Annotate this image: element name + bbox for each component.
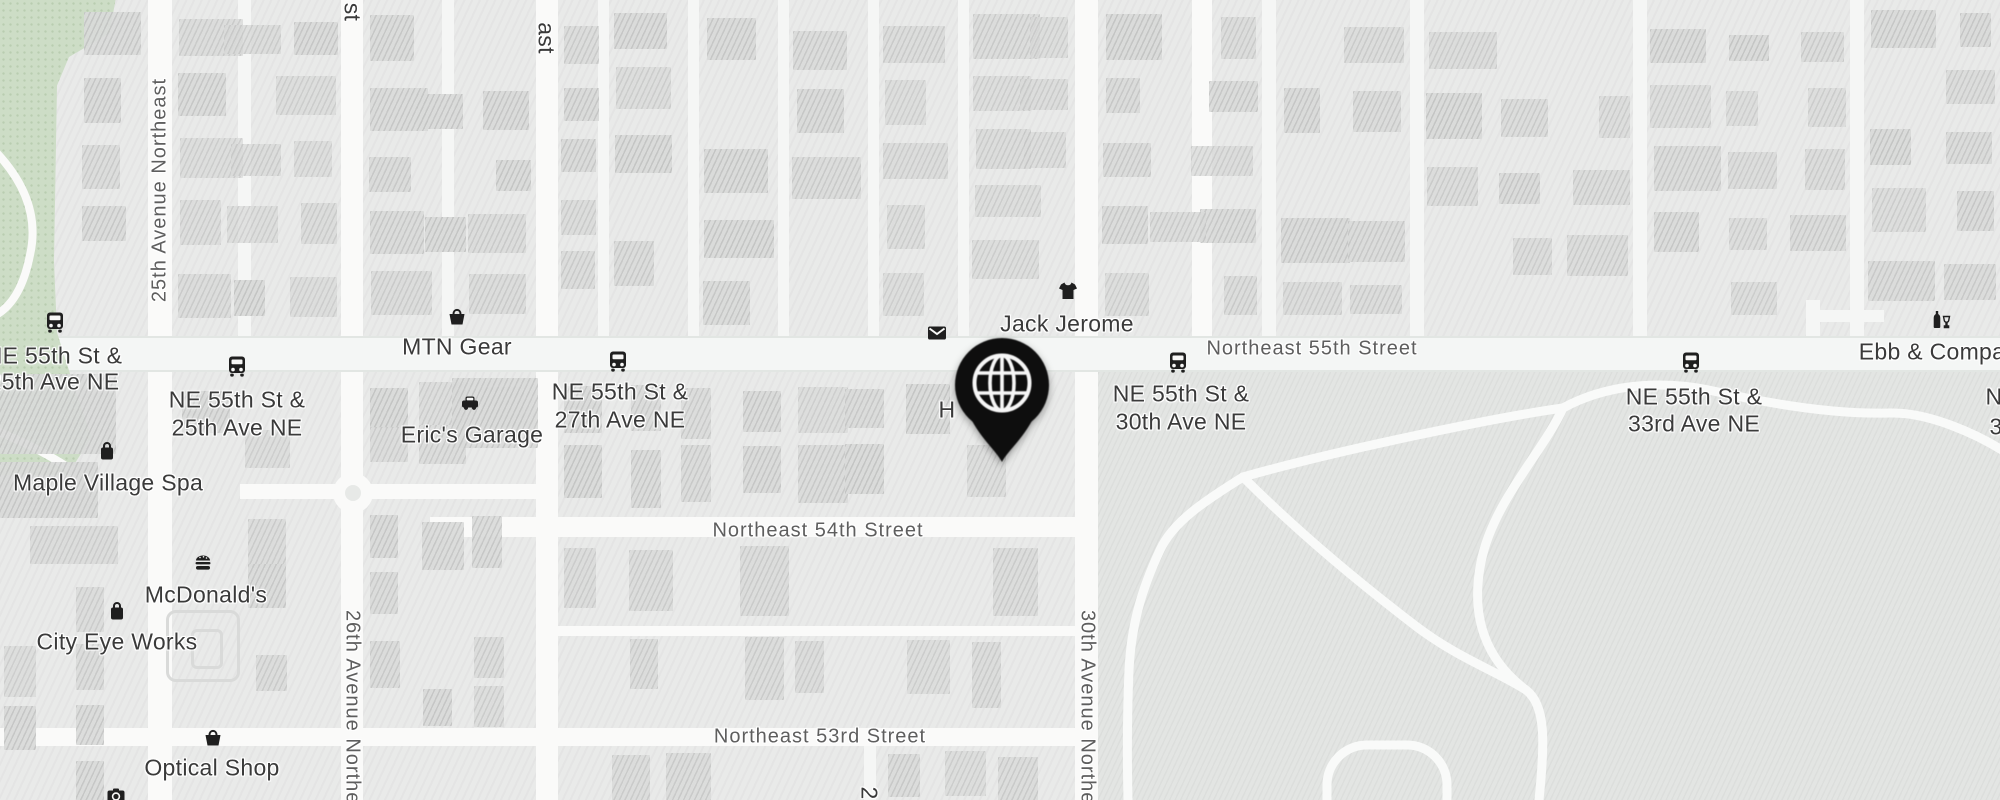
road-segment	[1806, 310, 1884, 322]
building	[1429, 32, 1497, 69]
building	[1200, 209, 1256, 243]
building	[1650, 85, 1711, 128]
street-label: 25th Avenue Northeast	[149, 78, 172, 302]
building	[370, 641, 400, 688]
building	[616, 67, 671, 109]
building	[666, 753, 711, 800]
building	[1957, 191, 1994, 231]
building	[1805, 149, 1845, 190]
building	[793, 31, 847, 70]
poi-label: 30th Ave NE	[1116, 409, 1247, 436]
building	[294, 22, 338, 55]
road-segment	[442, 0, 454, 336]
building	[1872, 188, 1926, 232]
building	[888, 754, 920, 797]
building	[1281, 218, 1350, 263]
building	[907, 640, 950, 694]
building	[1871, 10, 1936, 48]
poi-label: 27th Ave NE	[555, 407, 686, 434]
poi-label: Ebb & Compa	[1859, 339, 2000, 366]
poi-label: Maple Village Spa	[13, 470, 203, 497]
building	[1654, 146, 1721, 191]
building	[743, 446, 781, 493]
building	[1808, 88, 1846, 127]
building	[1726, 91, 1758, 126]
building	[629, 550, 673, 611]
poi-label: NE 55th St &	[1626, 384, 1763, 411]
building	[1344, 27, 1404, 63]
building	[76, 705, 104, 745]
building	[707, 18, 756, 60]
building	[76, 587, 104, 632]
building	[945, 751, 986, 796]
road-segment	[1410, 0, 1424, 336]
building	[1348, 221, 1405, 262]
building	[883, 26, 945, 63]
building	[1501, 99, 1548, 137]
building	[1729, 218, 1767, 250]
bus-icon	[1166, 350, 1190, 374]
poi-label: 25th Ave NE	[0, 369, 119, 396]
building	[227, 206, 278, 243]
building	[740, 546, 789, 616]
building	[703, 281, 750, 325]
building	[370, 572, 398, 614]
building	[84, 78, 121, 123]
building	[474, 637, 504, 678]
building	[614, 13, 667, 49]
street-label: Northeast 53rd Street	[714, 726, 926, 749]
street-label: Northeast 55th Street	[1206, 338, 1417, 361]
building	[798, 445, 848, 503]
building	[1868, 261, 1935, 301]
road-segment	[1262, 0, 1276, 336]
building	[1513, 238, 1552, 275]
bar-icon	[1929, 308, 1953, 332]
building	[425, 217, 466, 252]
building	[1790, 215, 1846, 251]
building	[1573, 170, 1630, 205]
building	[564, 548, 596, 608]
building	[234, 280, 265, 316]
building	[564, 26, 599, 64]
building	[224, 25, 281, 54]
building	[614, 241, 654, 286]
label-fragment: st	[339, 3, 366, 22]
building	[1284, 88, 1320, 133]
building	[369, 157, 411, 192]
road-segment	[1633, 0, 1647, 336]
poi-label: NE 55th St &	[1113, 381, 1250, 408]
shopping-bag-icon	[95, 439, 119, 463]
building	[1427, 167, 1478, 206]
building	[84, 12, 141, 55]
car-icon	[458, 391, 482, 415]
building	[4, 706, 36, 750]
building	[1944, 264, 1996, 300]
building	[1650, 29, 1706, 63]
building	[1801, 32, 1844, 62]
building	[417, 94, 463, 129]
building	[1209, 81, 1258, 112]
building	[561, 200, 596, 235]
building	[1191, 146, 1253, 176]
golf-course-paths	[1098, 372, 2000, 800]
bus-icon	[606, 349, 630, 373]
golf-course-area	[1098, 372, 2000, 800]
street-label: 30th Avenue Northeast	[1076, 610, 1099, 800]
building	[1106, 14, 1162, 60]
poi-label: 25th Ave NE	[172, 415, 303, 442]
road-segment	[598, 0, 609, 336]
building	[745, 637, 784, 700]
poi-label: MTN Gear	[402, 334, 512, 361]
map-canvas[interactable]: Northeast 55th StreetNortheast 54th Stre…	[0, 0, 2000, 800]
building	[370, 15, 414, 61]
shopping-basket-icon	[201, 725, 225, 749]
building	[564, 445, 602, 498]
building	[972, 240, 1039, 279]
street-label: Northeast 54th Street	[712, 520, 923, 543]
building	[180, 200, 221, 245]
building	[1221, 17, 1256, 59]
building	[998, 757, 1038, 800]
building	[256, 655, 287, 691]
building	[371, 271, 432, 315]
building	[704, 149, 768, 193]
road-segment	[556, 626, 1078, 636]
road-segment	[868, 0, 879, 336]
shopping-basket-icon	[445, 304, 469, 328]
bus-icon	[1679, 350, 1703, 374]
building	[1103, 143, 1151, 177]
building	[468, 214, 526, 253]
building	[82, 145, 120, 189]
building	[1960, 13, 1991, 47]
building	[423, 689, 452, 726]
road-segment	[240, 484, 540, 499]
building	[1946, 70, 1995, 104]
poi-label: City Eye Works	[37, 629, 198, 656]
label-fragment: ast	[533, 22, 560, 54]
building	[248, 519, 286, 568]
bus-icon	[43, 310, 67, 334]
poi-label: NE 55th St &	[0, 343, 122, 370]
building	[1283, 282, 1342, 315]
label-fragment: 2	[856, 786, 883, 799]
building	[797, 89, 844, 133]
poi-label: Jack Jerome	[1000, 311, 1134, 338]
building	[972, 642, 1001, 708]
building	[422, 522, 464, 570]
building	[483, 91, 529, 130]
building	[1024, 132, 1066, 168]
map-pin[interactable]	[952, 335, 1052, 465]
building	[975, 185, 1041, 217]
building	[474, 686, 504, 727]
building	[1353, 91, 1401, 132]
building	[1728, 152, 1777, 189]
building	[561, 139, 596, 172]
building	[681, 445, 711, 502]
building	[1030, 17, 1068, 58]
building	[301, 203, 337, 244]
building	[1426, 93, 1482, 139]
bus-icon	[225, 354, 249, 378]
building	[795, 641, 824, 693]
road-segment	[1850, 0, 1864, 336]
building	[76, 761, 104, 800]
building	[1102, 206, 1148, 244]
building	[370, 515, 398, 558]
poi-label: McDonald's	[145, 582, 267, 609]
label-fragment: N	[1986, 384, 2000, 411]
building	[1020, 79, 1068, 110]
poi-label: NE 55th St &	[169, 387, 306, 414]
building	[1731, 282, 1777, 315]
building	[1224, 276, 1257, 315]
building	[294, 141, 332, 177]
building	[612, 755, 650, 800]
label-fragment: 3	[1989, 414, 2000, 441]
building	[798, 387, 848, 433]
roundabout	[333, 473, 373, 513]
building	[1946, 132, 1992, 164]
street-label: 26th Avenue Northeast	[341, 610, 364, 800]
road-segment	[778, 0, 789, 336]
building	[1350, 285, 1402, 314]
road-segment	[688, 0, 699, 336]
building	[1654, 212, 1699, 252]
tshirt-icon	[1056, 279, 1080, 303]
burger-icon	[191, 550, 215, 574]
mail-icon	[925, 321, 949, 345]
building	[276, 76, 336, 115]
building	[290, 277, 337, 317]
building	[883, 273, 924, 316]
building	[496, 160, 531, 191]
building	[630, 639, 658, 689]
building	[845, 389, 884, 428]
road-segment	[958, 0, 969, 336]
building	[887, 205, 925, 249]
building	[615, 135, 672, 173]
building	[561, 251, 595, 289]
building	[883, 143, 948, 179]
building	[845, 444, 884, 494]
building	[1729, 35, 1769, 61]
building	[472, 516, 502, 568]
building	[1499, 173, 1540, 204]
building	[564, 88, 599, 121]
building	[993, 548, 1038, 616]
building	[976, 129, 1031, 169]
poi-label: Eric's Garage	[401, 422, 544, 449]
building	[178, 274, 231, 318]
shopping-bag-icon	[105, 599, 129, 623]
building	[885, 80, 926, 125]
poi-label: NE 55th St &	[552, 379, 689, 406]
building	[469, 274, 526, 314]
building	[704, 220, 774, 258]
poi-label: Optical Shop	[144, 755, 279, 782]
building	[1150, 212, 1206, 242]
building	[1599, 96, 1630, 138]
building	[178, 73, 226, 116]
building	[631, 450, 661, 508]
camera-icon	[104, 784, 128, 800]
building	[30, 526, 118, 564]
building	[743, 391, 781, 432]
building	[231, 144, 281, 176]
building	[370, 211, 424, 254]
building	[1106, 78, 1140, 113]
building	[1567, 235, 1628, 276]
building	[4, 646, 36, 697]
poi-label: 33rd Ave NE	[1628, 411, 1760, 438]
building	[792, 157, 861, 199]
building	[82, 206, 126, 241]
building	[1870, 129, 1911, 165]
